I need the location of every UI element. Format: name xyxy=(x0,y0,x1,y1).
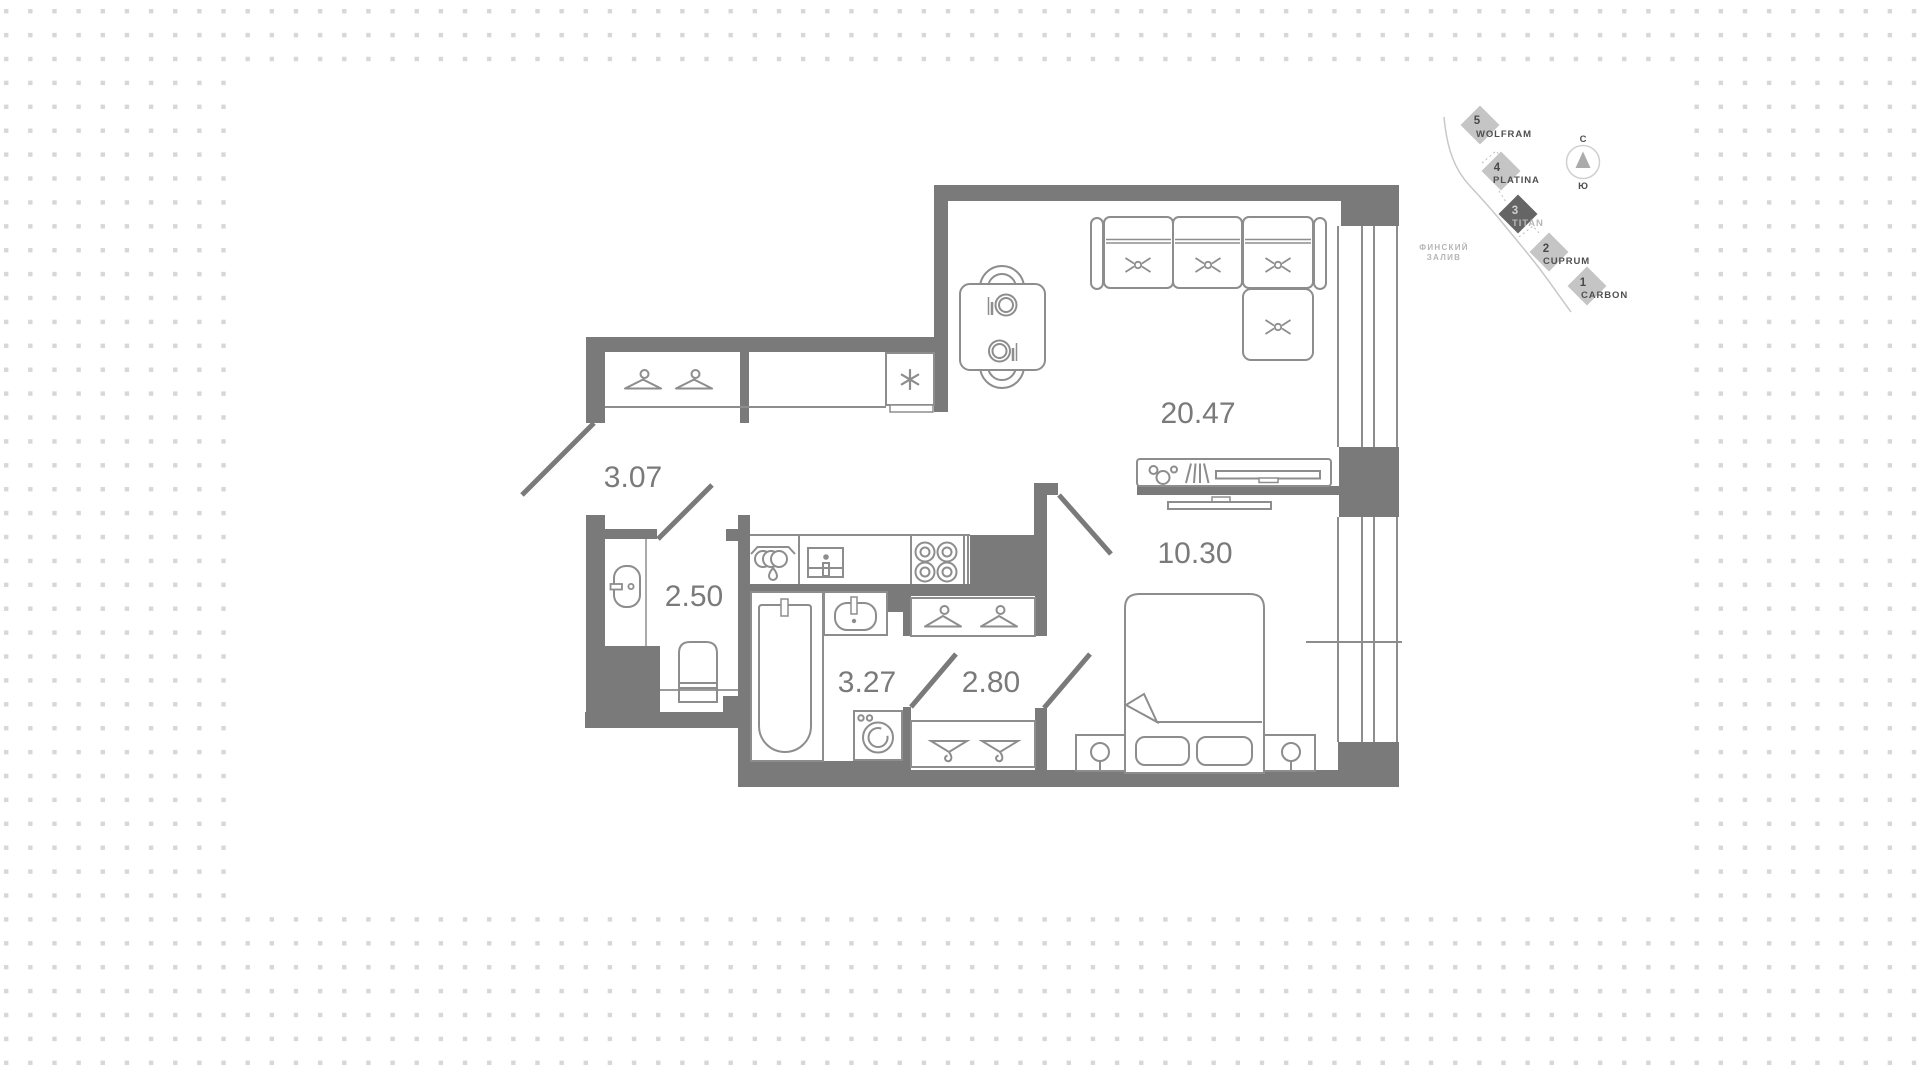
svg-text:2.50: 2.50 xyxy=(665,580,723,613)
svg-text:Ю: Ю xyxy=(1578,181,1588,192)
svg-text:10.30: 10.30 xyxy=(1157,537,1232,570)
svg-text:С: С xyxy=(1580,134,1587,145)
svg-text:2: 2 xyxy=(1543,243,1549,255)
svg-text:20.47: 20.47 xyxy=(1160,397,1235,430)
svg-text:PLATINA: PLATINA xyxy=(1493,175,1540,186)
svg-text:2.80: 2.80 xyxy=(962,666,1020,699)
svg-text:4: 4 xyxy=(1494,162,1501,174)
svg-text:3: 3 xyxy=(1512,205,1518,217)
svg-text:5: 5 xyxy=(1474,115,1481,127)
svg-text:CARBON: CARBON xyxy=(1581,290,1628,301)
svg-text:CUPRUM: CUPRUM xyxy=(1543,256,1590,267)
svg-text:3.27: 3.27 xyxy=(838,666,896,699)
svg-text:ЗАЛИВ: ЗАЛИВ xyxy=(1427,253,1462,262)
svg-text:WOLFRAM: WOLFRAM xyxy=(1476,129,1532,140)
svg-text:3.07: 3.07 xyxy=(604,461,662,494)
svg-text:ФИНСКИЙ: ФИНСКИЙ xyxy=(1419,243,1469,252)
svg-text:1: 1 xyxy=(1580,277,1587,289)
svg-text:TITAN: TITAN xyxy=(1512,218,1544,229)
